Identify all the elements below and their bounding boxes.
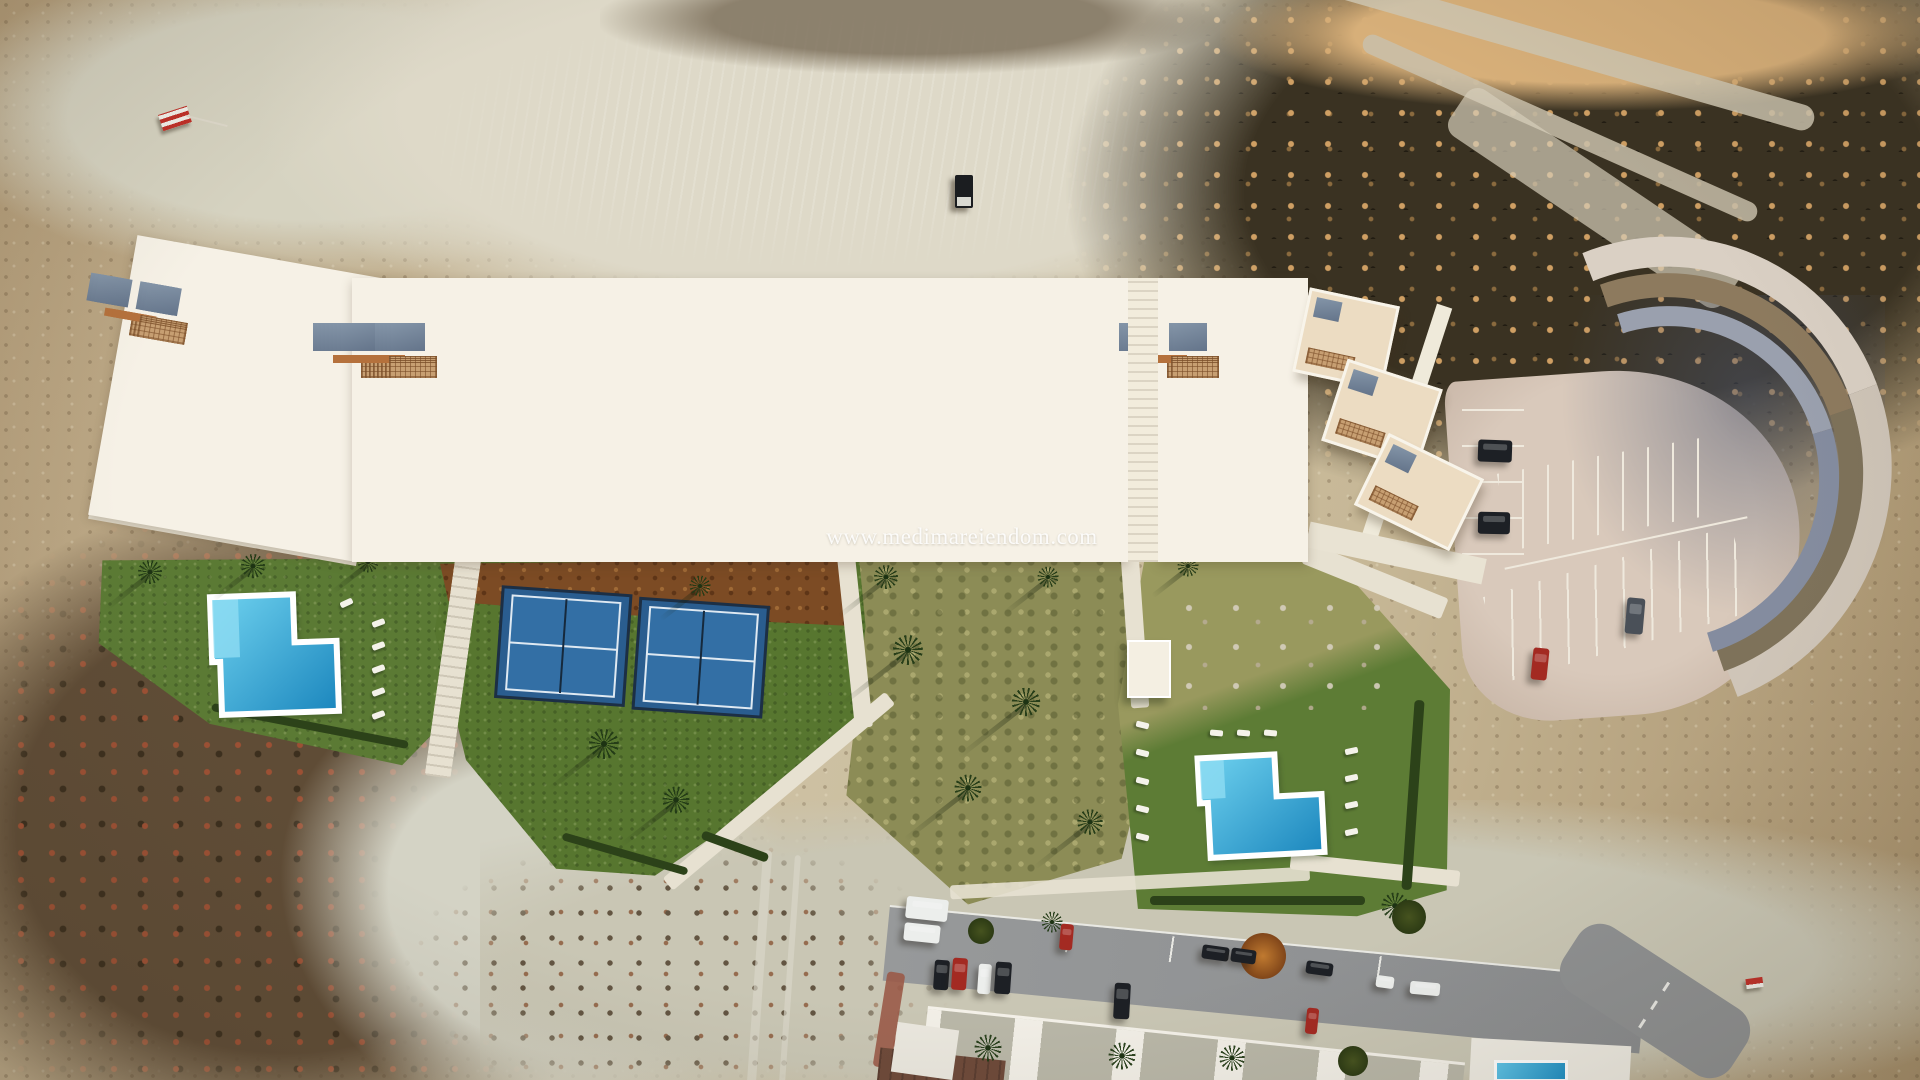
balcony-lattice	[389, 362, 437, 378]
parked-car-black	[994, 961, 1012, 994]
small-private-pool	[1494, 1060, 1568, 1080]
roof	[141, 237, 148, 278]
aerial-render-scene: www.medimareiendom.com	[0, 0, 1920, 1080]
palm-tree	[874, 565, 898, 589]
planter-row	[124, 329, 128, 353]
entrance-stair-corridor	[1128, 278, 1158, 562]
swimming-pool-west	[198, 587, 353, 724]
swimming-pool-east	[1189, 744, 1340, 865]
palm-tree	[589, 729, 619, 759]
parked-car-darkred	[1059, 923, 1074, 950]
parked-car-white	[1375, 975, 1394, 989]
palm-tree	[1077, 809, 1103, 835]
rock-scatter	[1180, 600, 1380, 710]
palm-tree	[1042, 912, 1063, 933]
palm-tree	[955, 775, 982, 802]
palm-tree	[690, 576, 711, 597]
palm-tree	[1012, 688, 1041, 717]
sun-lounger	[1210, 729, 1223, 736]
roof	[137, 236, 144, 277]
padel-courts	[493, 579, 773, 726]
palm-tree	[241, 554, 265, 578]
pergola-strip	[133, 312, 135, 322]
parked-van-white	[905, 896, 949, 922]
parked-car-black	[1113, 983, 1131, 1020]
palm-tree	[663, 787, 690, 814]
parked-car-dark	[1478, 439, 1513, 462]
pickup-truck-on-dirt	[955, 175, 973, 208]
planter-row	[120, 328, 124, 352]
parked-car-red	[1530, 647, 1549, 680]
sun-lounger	[1264, 729, 1277, 736]
parked-car-dark	[1478, 512, 1510, 535]
apartment-block-east	[1158, 278, 1308, 562]
palm-tree	[1109, 1043, 1136, 1070]
street-tree	[968, 918, 994, 944]
parked-car-gray	[1624, 597, 1645, 634]
balcony-lattice	[1171, 362, 1219, 378]
palm-tree	[975, 1035, 1002, 1062]
street-tree	[1392, 900, 1426, 934]
parked-car-white	[1409, 981, 1440, 997]
parked-car-black	[933, 960, 950, 991]
white-house	[891, 1022, 959, 1080]
parked-car-red	[951, 958, 968, 991]
palm-tree	[138, 560, 162, 584]
palm-tree	[1038, 567, 1059, 588]
hedge	[1150, 896, 1365, 905]
street-tree	[1338, 1046, 1368, 1076]
apartment-block-central	[352, 278, 1128, 562]
parked-car-white	[977, 964, 992, 995]
garden-pergola-structure	[1127, 640, 1171, 698]
sun-lounger	[1237, 729, 1250, 736]
palm-tree	[1219, 1045, 1245, 1071]
watermark-text: www.medimareiendom.com	[812, 524, 1112, 550]
parked-car-white	[903, 922, 941, 944]
palm-tree	[893, 635, 923, 665]
